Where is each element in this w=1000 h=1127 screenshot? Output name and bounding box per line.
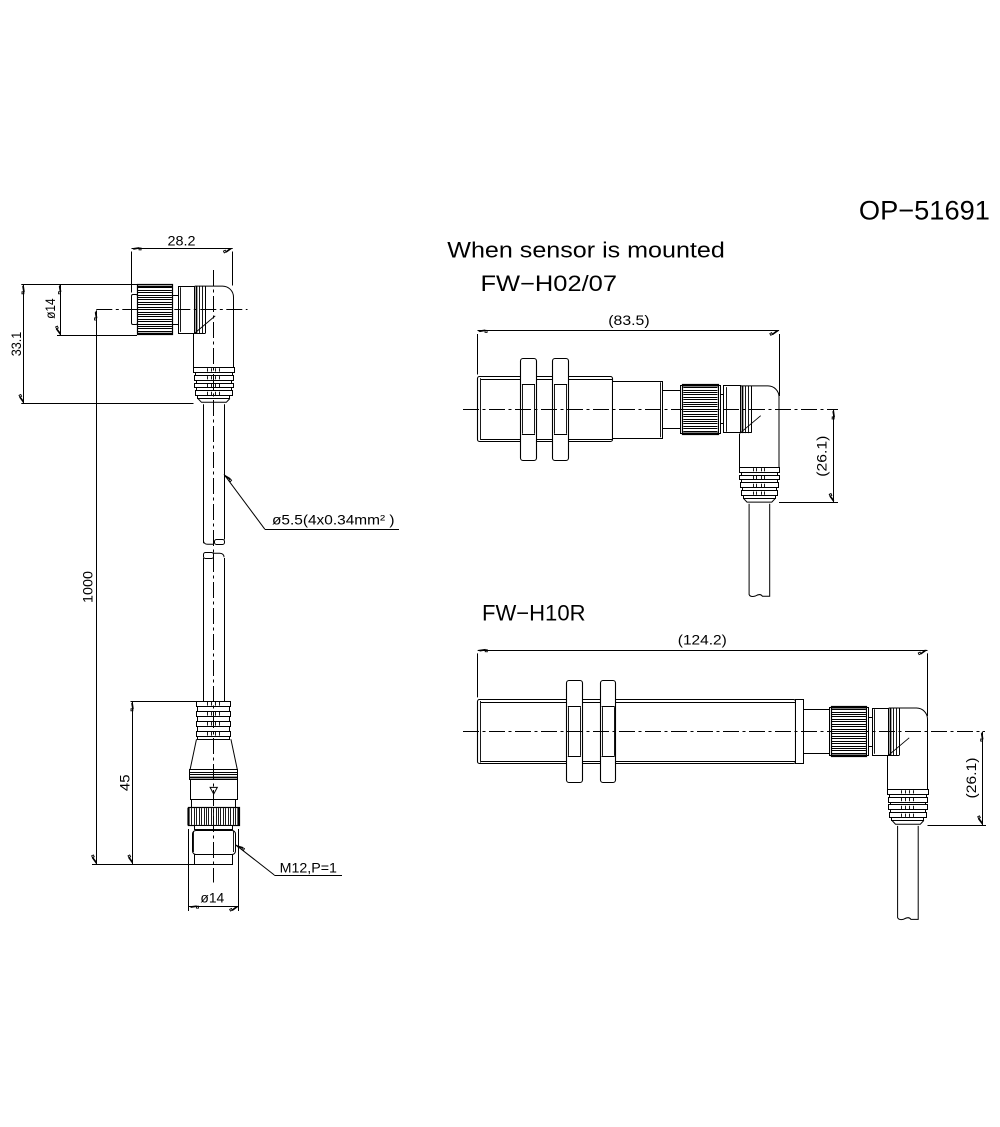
svg-text:1000: 1000: [80, 571, 96, 603]
svg-text:ø14: ø14: [200, 889, 224, 905]
svg-text:45: 45: [116, 774, 132, 791]
svg-text:FW−H02/07: FW−H02/07: [481, 271, 618, 296]
svg-text:FW−H10R: FW−H10R: [482, 600, 586, 625]
svg-text:M12,P=1: M12,P=1: [280, 859, 338, 875]
svg-text:When sensor is mounted: When sensor is mounted: [447, 238, 725, 263]
svg-text:28.2: 28.2: [168, 232, 196, 248]
svg-text:(26.1): (26.1): [963, 758, 979, 799]
svg-text:ø5.5(4x0.34mm² ): ø5.5(4x0.34mm² ): [272, 511, 395, 527]
svg-text:ø14: ø14: [42, 298, 58, 319]
svg-text:OP−51691: OP−51691: [859, 196, 990, 226]
svg-text:(26.1): (26.1): [814, 436, 830, 477]
svg-text:(124.2): (124.2): [678, 631, 727, 647]
svg-text:33.1: 33.1: [8, 332, 24, 357]
svg-text:(83.5): (83.5): [608, 312, 649, 328]
